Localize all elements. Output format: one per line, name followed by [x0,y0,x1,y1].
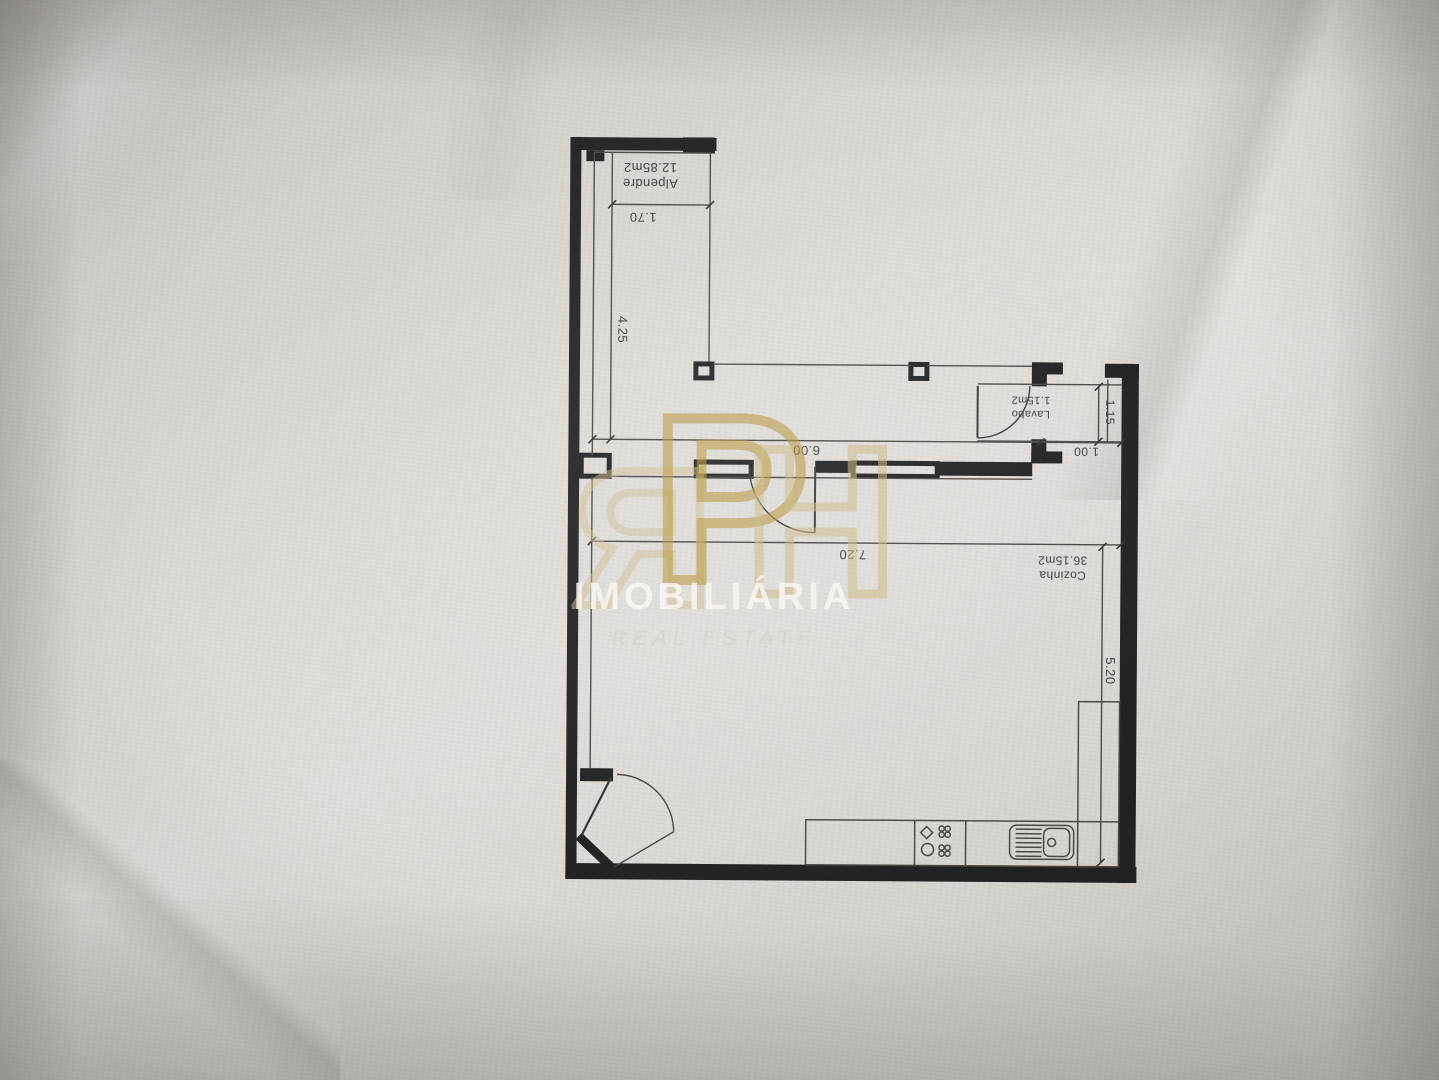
dimension-label: 1.15 [1102,384,1117,440]
door-frame-block [580,768,613,781]
wall-segment [937,462,1032,477]
room-area: 12.85m2 [598,158,702,175]
window-panel [853,463,937,477]
dimension-label: 7.20 [825,546,881,563]
room-name: Lavabo [1011,408,1050,420]
thin-lines [589,152,1123,863]
dimension-label: 1.70 [615,208,671,225]
counter-right [1077,702,1119,867]
dim-line-7-20 [592,541,1121,545]
angled-entry-door [578,774,674,869]
kitchen-fixtures [805,700,1119,867]
room-name: Cozinha [1039,568,1086,582]
floor-plan-photo: Alpendre 12.85m2 Lavabo 1.15m2 Cozinha 3… [0,0,1439,1080]
kitchen-door [749,466,815,532]
dimension-label: 5.20 [1101,643,1118,699]
burner [939,826,950,837]
dimension-label: 1.00 [1058,443,1114,458]
pillar [911,364,927,378]
pillar [696,364,712,378]
door-arc [749,466,815,532]
sink-icon [1009,825,1073,859]
room-area: 1.15m2 [984,392,1078,406]
wall-pilaster [581,455,609,476]
room-area: 36.15m2 [1011,552,1115,568]
burner [939,845,950,856]
floor-plan: Alpendre 12.85m2 Lavabo 1.15m2 Cozinha 3… [0,0,1439,1080]
wall-corner-block [1105,364,1139,378]
door-leaf [582,777,611,835]
door-arc [617,774,674,831]
dimension-ticks [585,200,1127,867]
window-panel [696,462,751,476]
room-label-lavabo: Lavabo 1.15m2 [984,392,1078,420]
dim-line-5-20 [1100,547,1102,863]
stove-icon [921,826,951,856]
lavabo-wall-block [1032,362,1063,374]
floor-plan-drawing [0,0,1439,1080]
room-label-alpendre: Alpendre 12.85m2 [598,158,702,191]
room-name: Alpendre [623,176,678,191]
dimension-label: 4.25 [614,301,631,357]
dimension-label: 6.00 [778,441,834,458]
outer-walls [565,137,1141,883]
dim-line-1-70 [612,204,710,205]
room-label-cozinha: Cozinha 36.15m2 [1010,552,1114,583]
wall-segment [815,461,853,473]
wall-left [565,137,581,878]
